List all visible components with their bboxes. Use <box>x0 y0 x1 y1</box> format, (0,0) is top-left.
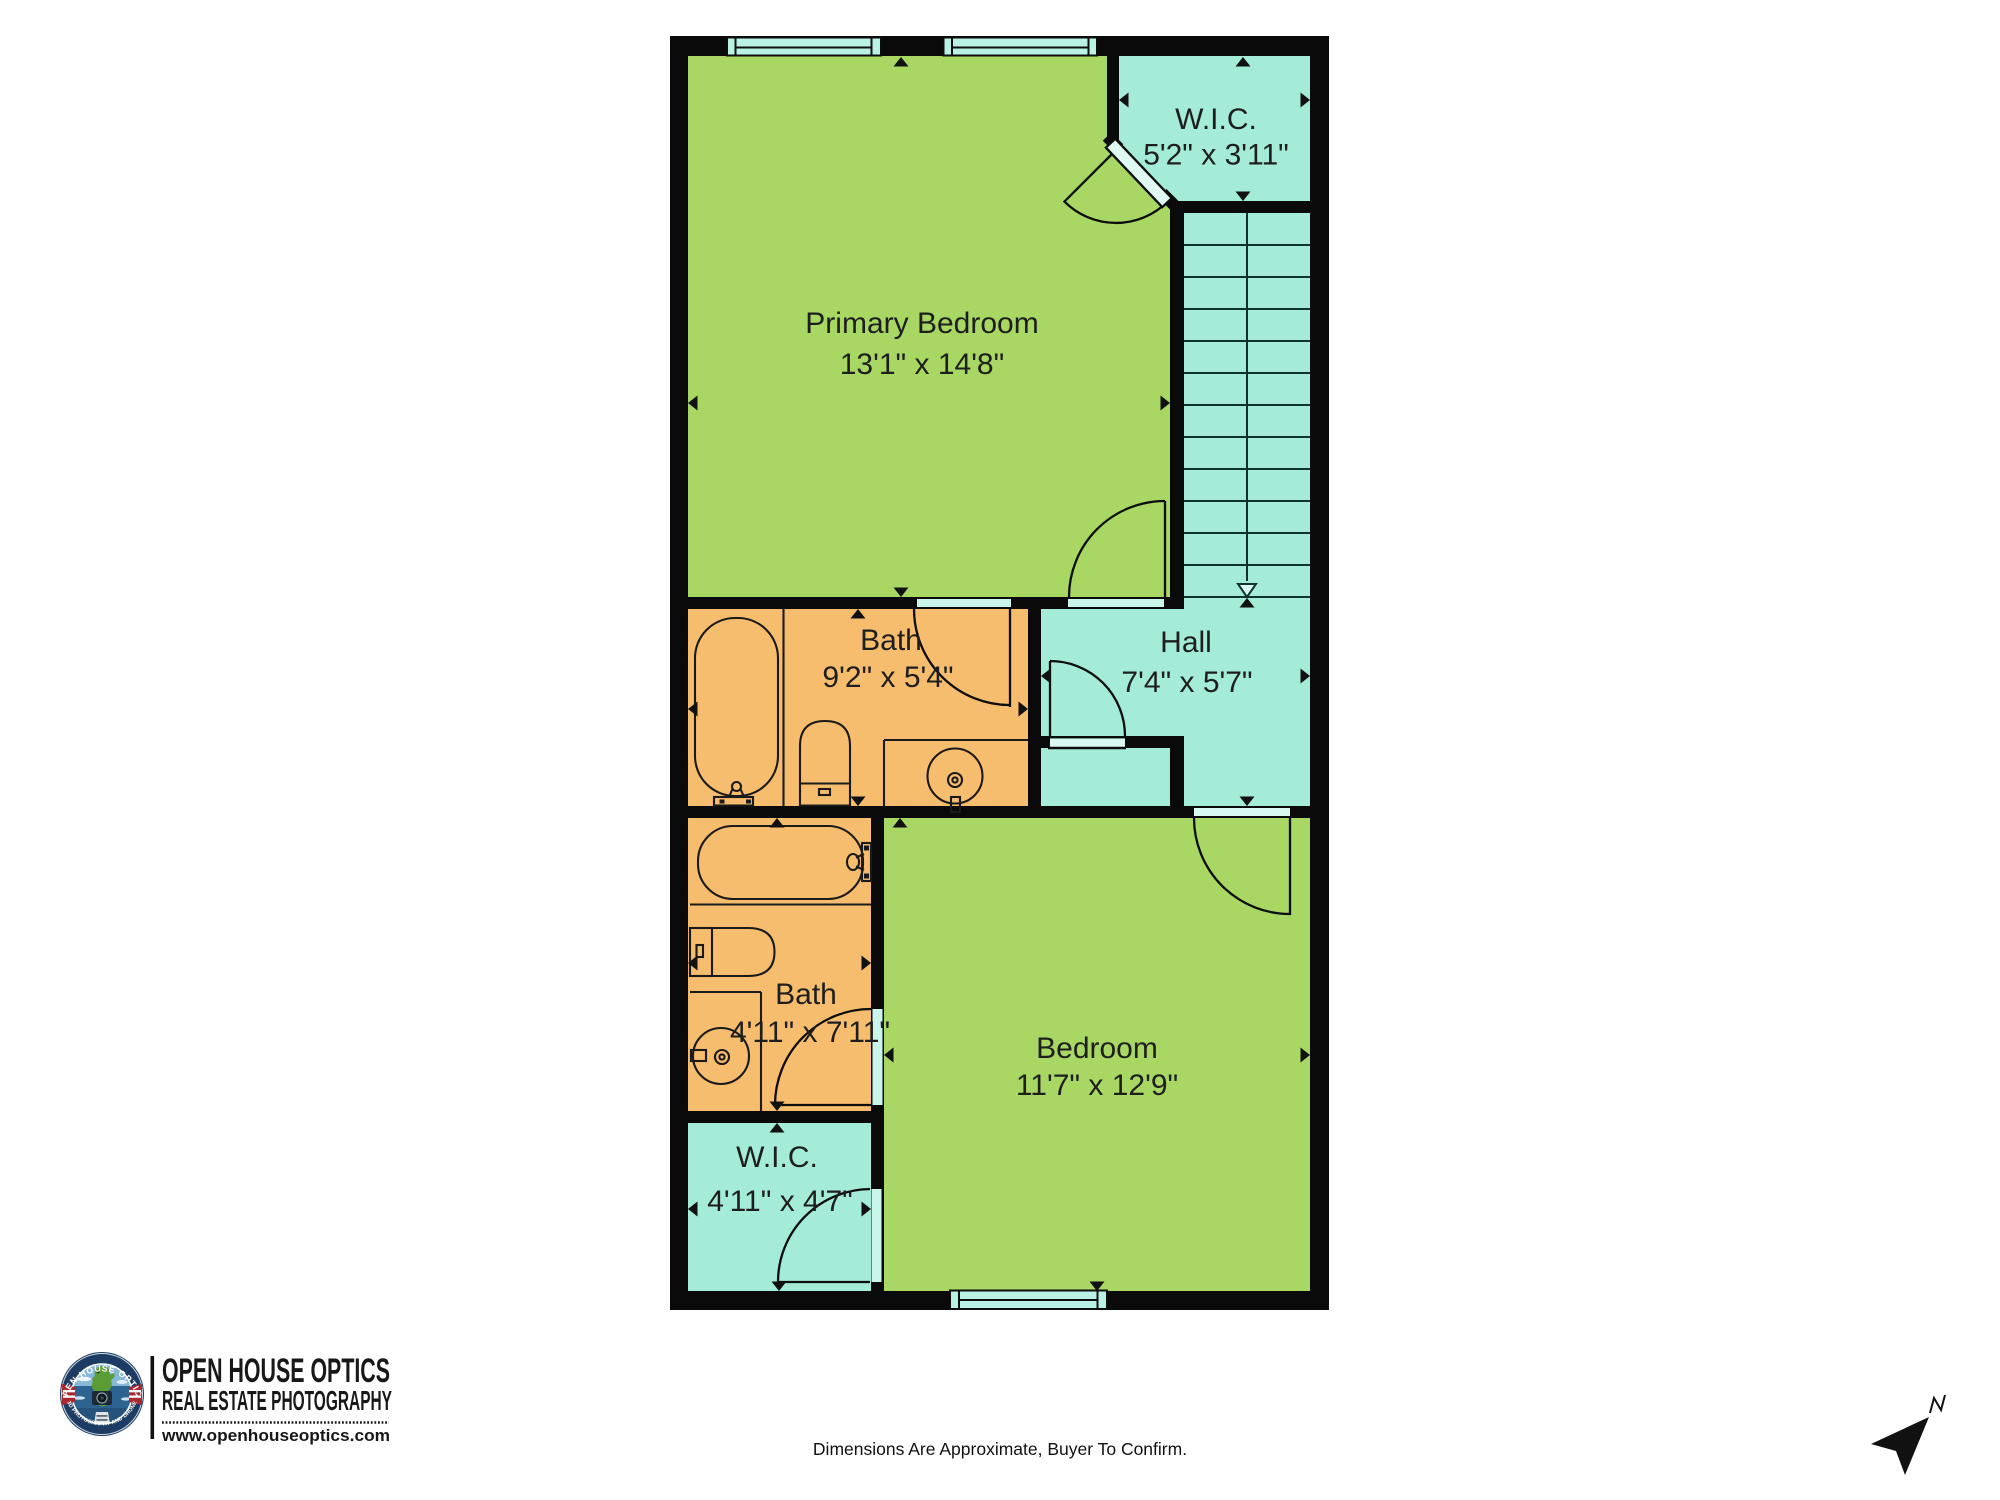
svg-text:W.I.C.: W.I.C. <box>1175 103 1257 136</box>
svg-text:Bedroom: Bedroom <box>1036 1032 1158 1065</box>
svg-text:Bath: Bath <box>775 978 837 1011</box>
svg-text:9'2" x 5'4": 9'2" x 5'4" <box>822 661 953 694</box>
svg-text:Primary Bedroom: Primary Bedroom <box>805 307 1038 340</box>
svg-text:4'11" x 4'7": 4'11" x 4'7" <box>707 1185 853 1218</box>
svg-text:13'1" x 14'8": 13'1" x 14'8" <box>840 348 1005 381</box>
svg-text:5'2" x 3'11": 5'2" x 3'11" <box>1143 139 1289 172</box>
svg-text:7'4" x 5'7": 7'4" x 5'7" <box>1121 666 1252 699</box>
svg-text:Hall: Hall <box>1160 626 1212 659</box>
svg-text:Bath: Bath <box>860 624 922 657</box>
svg-text:4'11" x 7'11": 4'11" x 7'11" <box>730 1016 890 1049</box>
svg-text:Dimensions Are Approximate, Bu: Dimensions Are Approximate, Buyer To Con… <box>813 1439 1187 1459</box>
svg-text:11'7" x 12'9": 11'7" x 12'9" <box>1016 1069 1178 1102</box>
svg-text:www.openhouseoptics.com: www.openhouseoptics.com <box>161 1426 390 1445</box>
svg-text:REAL ESTATE PHOTOGRAPHY: REAL ESTATE PHOTOGRAPHY <box>162 1385 392 1416</box>
svg-text:W.I.C.: W.I.C. <box>736 1141 818 1174</box>
